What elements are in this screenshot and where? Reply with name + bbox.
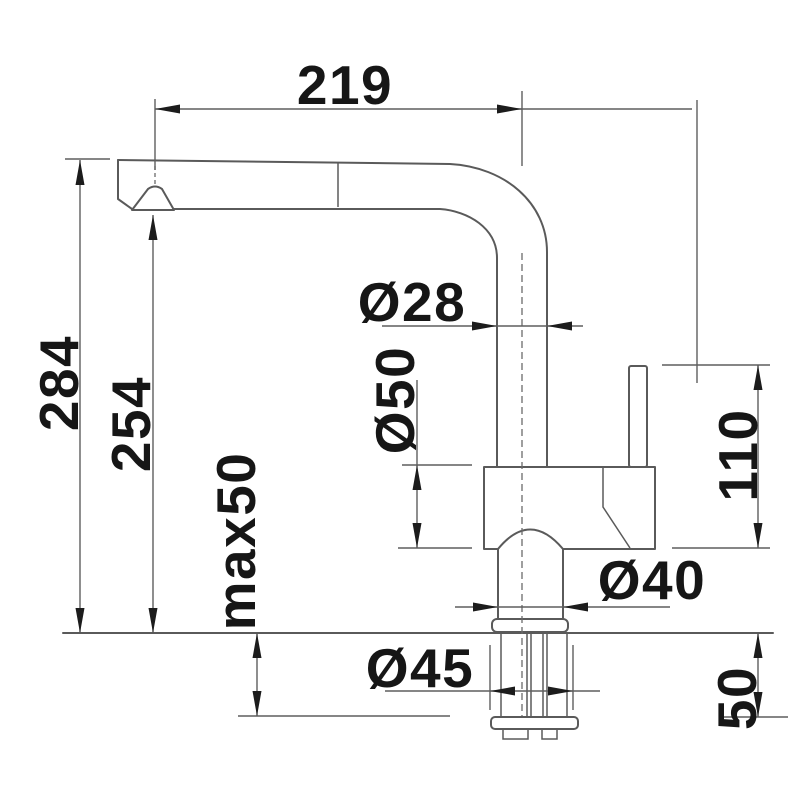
handle-joint-seam	[603, 467, 630, 548]
hose-end-right	[542, 729, 557, 739]
dimension-label: 110	[707, 408, 769, 501]
base-neck	[498, 549, 563, 619]
drawing-canvas: 219 284 254 max50 Ø28	[0, 0, 800, 800]
aerator-cone	[132, 187, 174, 211]
spout-left-end	[118, 160, 132, 209]
dimension-spout-pipe-diameter: Ø28	[358, 271, 583, 333]
mounting-nut	[491, 717, 578, 729]
hose-end-left	[503, 729, 528, 739]
mixer-body	[484, 467, 655, 549]
dimension-spout-reach: 219	[155, 54, 697, 383]
dimension-label: 50	[706, 666, 768, 730]
dimension-body-diameter: Ø50	[364, 346, 472, 548]
dimensions: 219 284 254 max50 Ø28	[28, 54, 788, 730]
dimension-label: Ø45	[366, 637, 474, 699]
dimension-base-diameter: Ø40	[455, 549, 706, 612]
supply-hoses	[527, 633, 547, 717]
handle-lever	[629, 366, 647, 467]
base-flange	[492, 619, 568, 632]
spout-underside	[174, 209, 497, 466]
threaded-shank	[501, 633, 567, 717]
faucet-technical-drawing: 219 284 254 max50 Ø28	[0, 0, 800, 800]
dimension-flange-diameter: Ø45	[366, 637, 600, 710]
dimension-label: 284	[28, 335, 90, 431]
dimension-label: max50	[205, 452, 267, 631]
dimension-label: 254	[100, 376, 162, 472]
dimension-spout-height: 254	[100, 215, 162, 633]
spout-top-edge	[118, 160, 547, 466]
dimension-overall-height: 284	[28, 159, 110, 633]
dimension-label: Ø50	[364, 346, 426, 454]
dimension-handle-height: 110	[662, 365, 770, 548]
dimension-label: Ø40	[598, 549, 706, 611]
dimension-label: Ø28	[358, 271, 466, 333]
dimension-label: 219	[297, 54, 393, 116]
dimension-lines	[155, 91, 697, 383]
dimension-under-deck-depth: 50	[706, 633, 788, 730]
